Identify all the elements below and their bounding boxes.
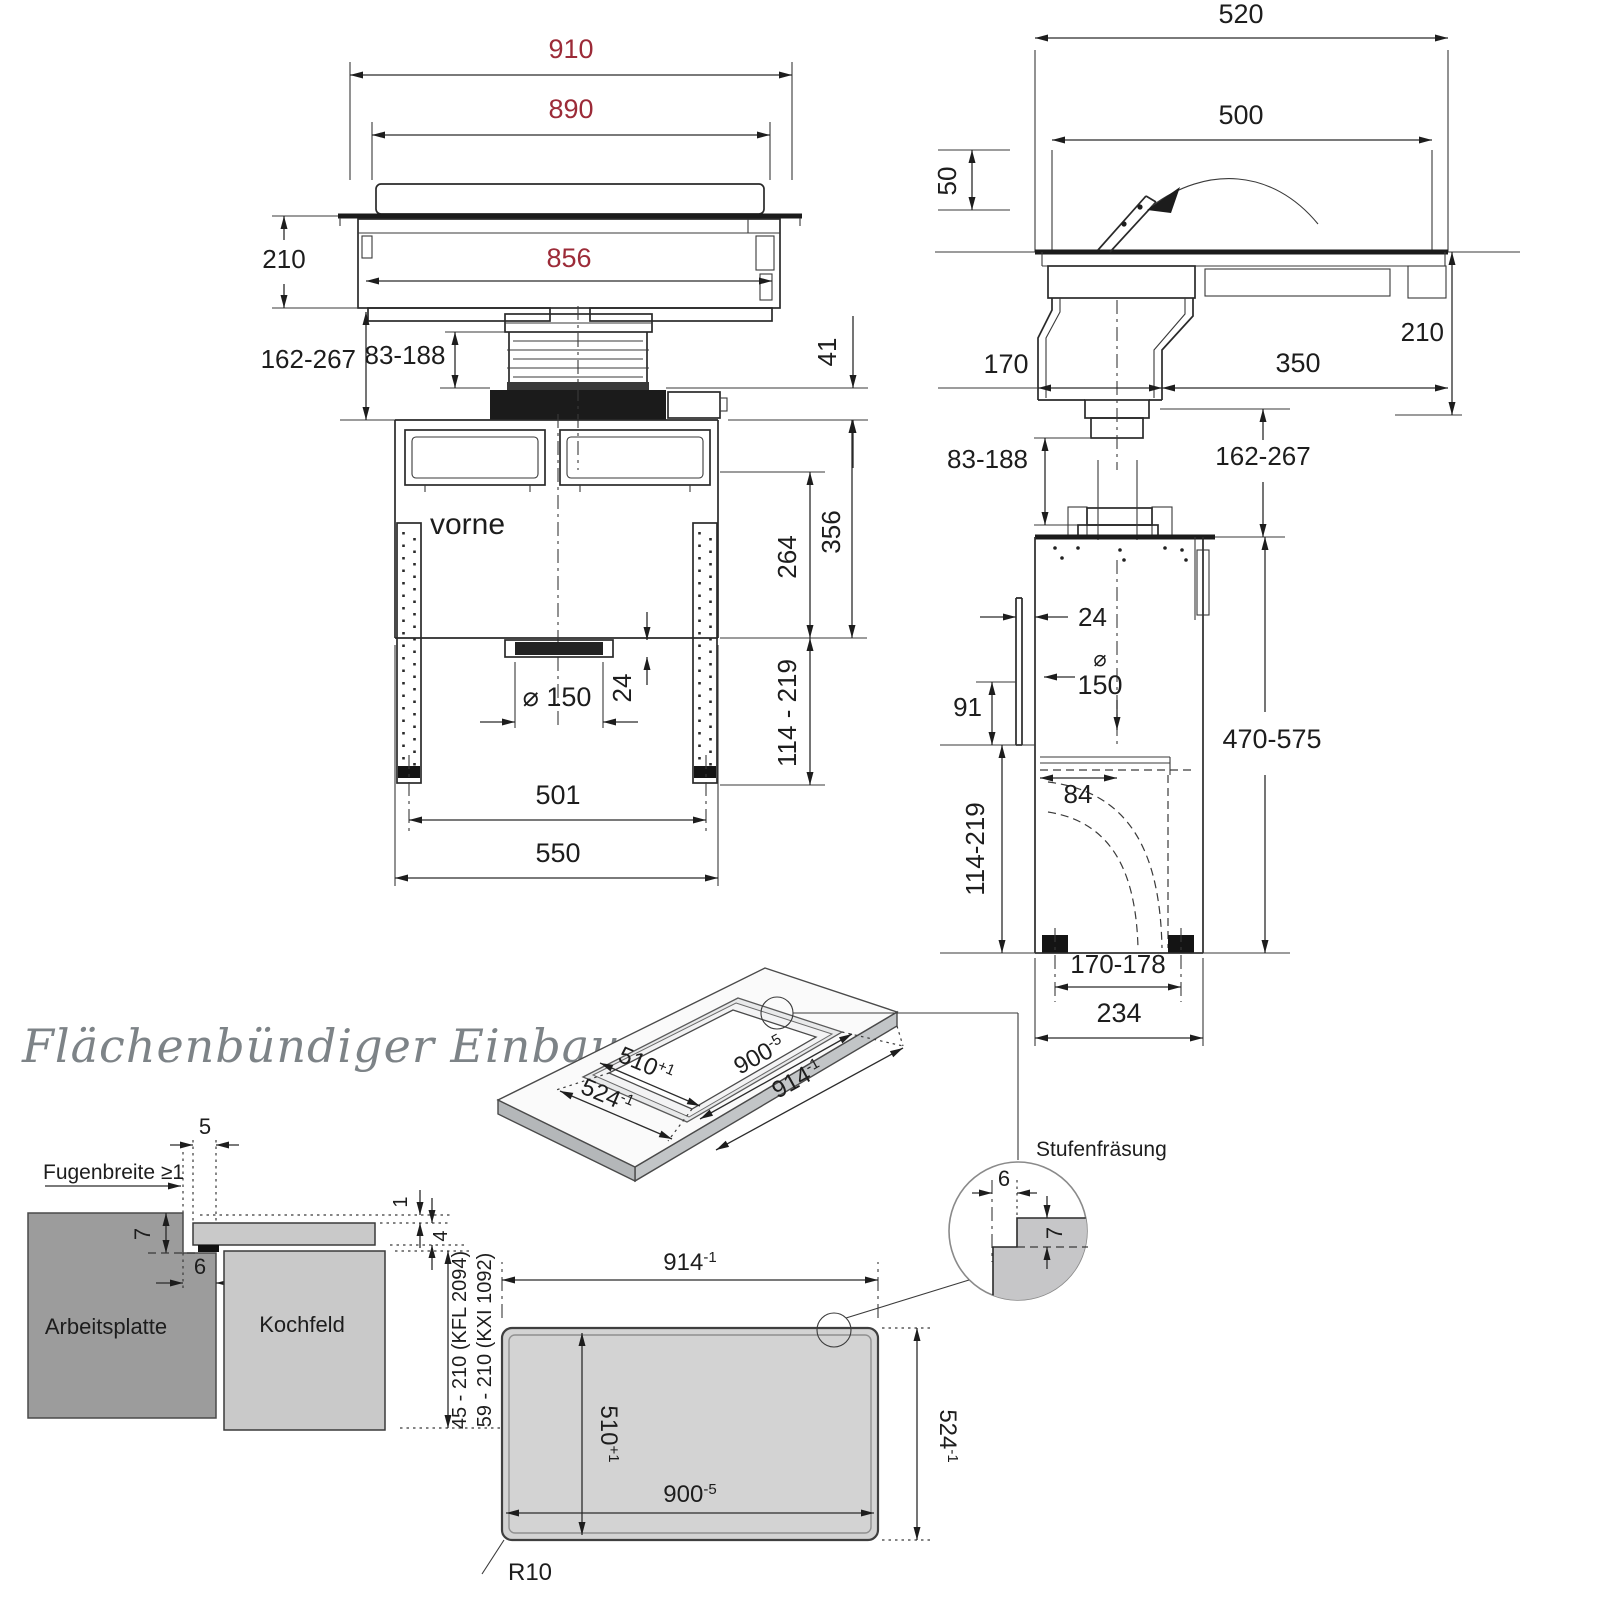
dim-side-glass-depth: 500 — [1218, 100, 1263, 130]
dim-side-outer-depth: 520 — [1218, 0, 1263, 29]
technical-drawing: 910 890 856 210 162-267 83-188 41 — [0, 0, 1600, 1600]
height-range-kxi: 59 - 210 (KXI 1092) — [474, 1253, 496, 1428]
dim-bottom-total-width: 550 — [535, 838, 580, 868]
dim-panel-width-outer: 524-1 — [934, 1409, 961, 1462]
dim-front-inner-width: 856 — [546, 243, 591, 273]
front-side-label: vorne — [430, 508, 505, 541]
dim-detail-step-width: 6 — [998, 1166, 1010, 1191]
dim-panel-length-outer: 914-1 — [663, 1249, 716, 1276]
dim-flush-step-depth: 7 — [130, 1228, 155, 1240]
hob-label: Kochfeld — [259, 1312, 345, 1337]
dim-blower-foot-spacing: 170-178 — [1070, 949, 1165, 979]
dim-front-duct-height: 83-188 — [365, 340, 446, 370]
joint-width-label: Fugenbreite ≥1 — [43, 1161, 184, 1184]
detail-view-linework — [949, 1162, 1092, 1302]
dim-bottom-opening-height: 264 — [772, 535, 802, 578]
dim-front-body-height: 210 — [262, 244, 305, 274]
panel-view-linework — [482, 1262, 969, 1574]
bottom-view-linework — [395, 414, 868, 886]
dim-panel-corner-radius: R10 — [508, 1559, 552, 1586]
dim-detail-step-depth: 7 — [1042, 1227, 1067, 1239]
height-range-kfl: 45 - 210 (KFL 2094) — [449, 1251, 471, 1429]
dim-blower-duct-height: 83-188 — [947, 444, 1028, 474]
worktop-label: Arbeitsplatte — [45, 1314, 167, 1339]
dim-blower-dia-symbol: ⌀ — [1093, 646, 1106, 671]
iso-view: 510+1 524-1 900-5 914-1 — [498, 968, 1018, 1181]
dim-blower-total-height: 470-575 — [1222, 724, 1321, 754]
dim-flush-gap: 1 — [390, 1196, 412, 1207]
dim-blower-rail-offset: 24 — [1078, 602, 1107, 632]
dim-blower-install-height: 162-267 — [1215, 441, 1310, 471]
dim-front-outer-width: 910 — [548, 34, 593, 64]
detail-label: Stufenfräsung — [1036, 1138, 1167, 1161]
dim-bottom-rail-spacing: 501 — [535, 780, 580, 810]
installation-drawing-page: 910 890 856 210 162-267 83-188 41 — [0, 0, 1600, 1600]
dim-bottom-collar-height: 24 — [607, 674, 637, 703]
iso-view-linework — [498, 968, 1018, 1181]
side-view: 520 500 50 170 350 210 — [932, 0, 1520, 470]
dim-side-flap-height: 50 — [932, 167, 962, 196]
blower-view: 83-188 162-267 24 ⌀ 150 91 470-575 114-2… — [940, 409, 1322, 1046]
dim-bottom-duct-diameter: ⌀ 150 — [523, 682, 592, 712]
dim-side-rear-depth: 350 — [1275, 348, 1320, 378]
front-view: 910 890 856 210 162-267 83-188 41 — [261, 34, 868, 470]
dim-flush-glass-thickness: 4 — [430, 1230, 452, 1241]
dim-blower-total-depth: 234 — [1096, 998, 1141, 1028]
dim-front-offset: 41 — [812, 338, 842, 367]
dim-front-glass-width: 890 — [548, 94, 593, 124]
bottom-view: vorne 264 356 24 ⌀ 150 114 - 219 501 550 — [395, 414, 868, 886]
dim-blower-center-offset: 84 — [1064, 779, 1093, 809]
dim-bottom-leg-range: 114 - 219 — [772, 659, 802, 767]
dim-blower-slot-height: 91 — [953, 692, 982, 722]
dim-bottom-total-height: 356 — [816, 510, 846, 553]
dim-side-duct-width: 170 — [983, 349, 1028, 379]
dim-blower-lower-height: 114-219 — [960, 802, 990, 896]
dim-flush-edge: 5 — [199, 1114, 211, 1139]
dim-side-body-height: 210 — [1401, 317, 1444, 347]
dim-flush-step-width: 6 — [194, 1254, 206, 1279]
dim-front-install-height: 162-267 — [261, 344, 356, 374]
section-title: Flächenbündiger Einbau — [21, 1019, 621, 1073]
swing-arrow — [1152, 179, 1318, 224]
dim-blower-dia-value: 150 — [1077, 670, 1122, 700]
detail-view: Stufenfräsung 6 7 — [949, 1138, 1167, 1302]
panel-view: 914-1 510+1 900-5 524-1 R10 — [482, 1249, 969, 1586]
